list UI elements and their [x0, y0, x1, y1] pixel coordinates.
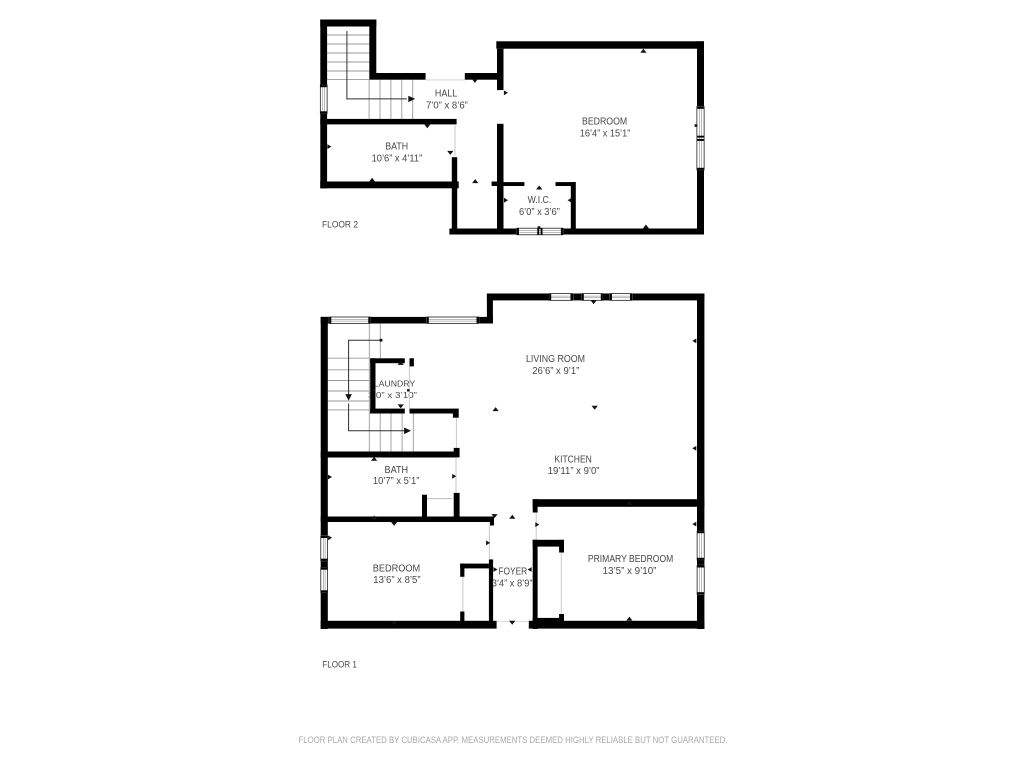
svg-text:LIVING ROOM: LIVING ROOM	[526, 354, 585, 365]
svg-text:W.I.C.: W.I.C.	[528, 195, 552, 206]
svg-text:BEDROOM: BEDROOM	[582, 117, 627, 128]
svg-text:3’0” x 3’10”: 3’0” x 3’10”	[368, 391, 417, 400]
svg-text:7’0” x 8’6”: 7’0” x 8’6”	[426, 101, 468, 112]
svg-text:HALL: HALL	[435, 89, 458, 100]
svg-text:BATH: BATH	[385, 142, 408, 153]
svg-text:19’11” x 9’0”: 19’11” x 9’0”	[548, 466, 600, 477]
svg-text:13’5” x 9’10”: 13’5” x 9’10”	[603, 566, 657, 577]
svg-text:10’6” x 4’11”: 10’6” x 4’11”	[372, 154, 423, 165]
svg-text:13’6” x 8’5”: 13’6” x 8’5”	[373, 575, 420, 586]
svg-text:26’6” x 9’1”: 26’6” x 9’1”	[532, 366, 579, 377]
svg-text:FOYER: FOYER	[498, 567, 527, 578]
svg-text:FLOOR PLAN CREATED BY CUBICASA: FLOOR PLAN CREATED BY CUBICASA APP. MEAS…	[299, 735, 728, 745]
svg-text:3’4” x 8’9”: 3’4” x 8’9”	[492, 578, 533, 589]
svg-text:BATH: BATH	[385, 465, 409, 476]
svg-text:FLOOR 2: FLOOR 2	[322, 220, 358, 230]
svg-text:BEDROOM: BEDROOM	[373, 563, 420, 574]
svg-text:KITCHEN: KITCHEN	[554, 454, 591, 465]
svg-text:6’0” x 3’6”: 6’0” x 3’6”	[519, 207, 560, 218]
svg-text:FLOOR 1: FLOOR 1	[322, 660, 357, 670]
svg-text:10’7” x 5’1”: 10’7” x 5’1”	[373, 476, 420, 487]
svg-text:PRIMARY BEDROOM: PRIMARY BEDROOM	[588, 554, 673, 565]
svg-text:16’4” x 15’1”: 16’4” x 15’1”	[580, 129, 631, 140]
